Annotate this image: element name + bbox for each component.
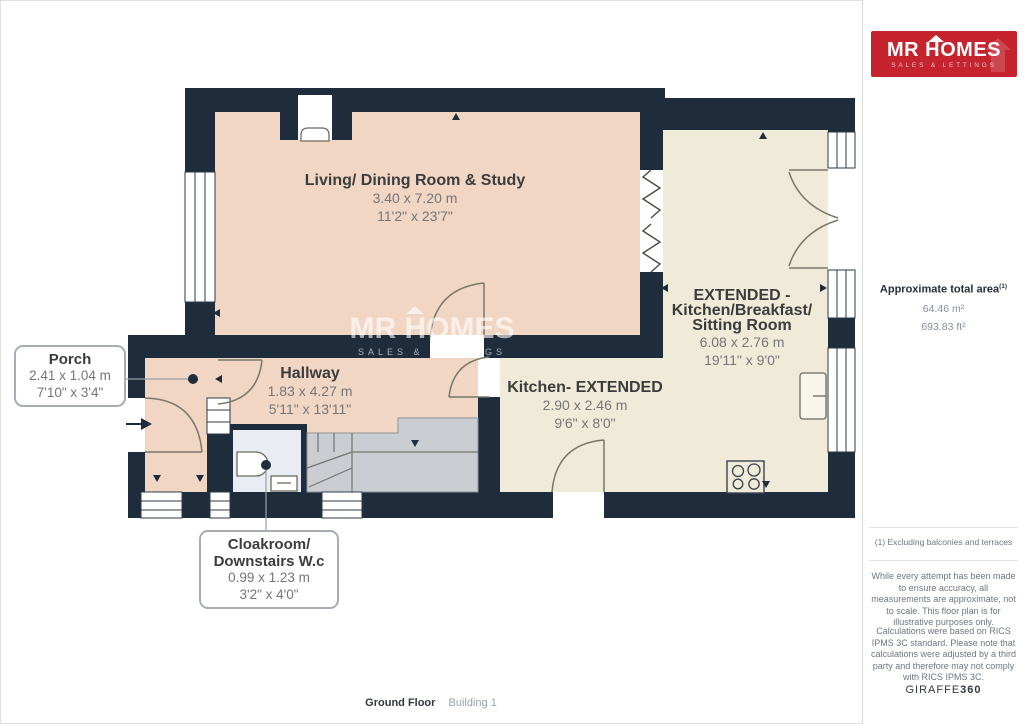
porch-metric: 2.41 x 1.04 m — [22, 368, 118, 385]
porch-imperial: 7'10" x 3'4" — [22, 385, 118, 402]
house-roof-icon — [928, 35, 944, 42]
label-hallway: Hallway 1.83 x 4.27 m 5'11" x 13'11" — [268, 366, 353, 418]
kitchen-name: Kitchen- EXTENDED — [507, 380, 663, 396]
label-extended-kitchen: EXTENDED - Kitchen/Breakfast/ Sitting Ro… — [672, 288, 813, 369]
extended-metric: 6.08 x 2.76 m — [672, 333, 813, 351]
hallway-name: Hallway — [268, 366, 353, 382]
giraffe360-brand: GIRAFFE360 — [863, 684, 1024, 696]
total-area-imperial: 693.83 ft² — [863, 318, 1024, 336]
plan-footer: Ground Floor Building 1 — [0, 697, 862, 709]
living-room-imperial: 11'2" x 23'7" — [305, 207, 525, 225]
extended-imperial: 19'11" x 9'0" — [672, 351, 813, 369]
giraffe360-suffix: 360 — [960, 684, 981, 696]
logo-brand: MR HOMES — [871, 40, 1017, 60]
total-area-block: Approximate total area(1) 64.46 m² 693.8… — [863, 283, 1024, 336]
divider — [869, 527, 1018, 528]
divider — [869, 560, 1018, 561]
cloakroom-name-line2: Downstairs W.c — [207, 553, 331, 570]
footnote-text: (1) Excluding balconies and terraces — [863, 537, 1024, 547]
floor-name: Ground Floor — [365, 697, 435, 709]
living-room-name: Living/ Dining Room & Study — [305, 173, 525, 189]
total-area-title-text: Approximate total area — [880, 284, 999, 296]
callout-porch: Porch 2.41 x 1.04 m 7'10" x 3'4" — [14, 345, 126, 407]
info-sidebar: MR HOMES SALES & LETTINGS Approximate to… — [862, 0, 1024, 724]
building-name: Building 1 — [449, 697, 497, 709]
extended-name-line1: EXTENDED - — [672, 288, 813, 303]
floorplan-page: MR HOMES SALES & LETTINGS Living/ Dining… — [0, 0, 1024, 724]
footnote-marker: (1) — [999, 283, 1007, 290]
total-area-values: 64.46 m² 693.83 ft² — [863, 300, 1024, 336]
extended-name-line2: Kitchen/Breakfast/ — [672, 303, 813, 318]
cloakroom-name-line1: Cloakroom/ — [207, 536, 331, 553]
agency-logo: MR HOMES SALES & LETTINGS — [871, 31, 1017, 77]
callout-cloakroom: Cloakroom/ Downstairs W.c 0.99 x 1.23 m … — [199, 530, 339, 609]
recess-fixture — [301, 128, 329, 141]
label-living-room: Living/ Dining Room & Study 3.40 x 7.20 … — [305, 173, 525, 225]
hallway-metric: 1.83 x 4.27 m — [268, 382, 353, 400]
extended-name-line3: Sitting Room — [672, 318, 813, 333]
total-area-title: Approximate total area(1) — [863, 283, 1024, 296]
giraffe360-name: GIRAFFE — [905, 684, 960, 696]
kitchen-imperial: 9'6" x 8'0" — [507, 414, 663, 432]
logo-brand-text: MR HOMES — [887, 39, 1001, 61]
cloakroom-imperial: 3'2" x 4'0" — [207, 587, 331, 604]
total-area-metric: 64.46 m² — [863, 300, 1024, 318]
cloakroom-metric: 0.99 x 1.23 m — [207, 570, 331, 587]
porch-name: Porch — [22, 351, 118, 368]
disclaimer-accuracy: While every attempt has been made to ens… — [870, 571, 1017, 629]
living-room-metric: 3.40 x 7.20 m — [305, 189, 525, 207]
label-kitchen: Kitchen- EXTENDED 2.90 x 2.46 m 9'6" x 8… — [507, 380, 663, 432]
hallway-imperial: 5'11" x 13'11" — [268, 400, 353, 418]
disclaimer-rics: Calculations were based on RICS IPMS 3C … — [870, 626, 1017, 684]
kitchen-metric: 2.90 x 2.46 m — [507, 396, 663, 414]
